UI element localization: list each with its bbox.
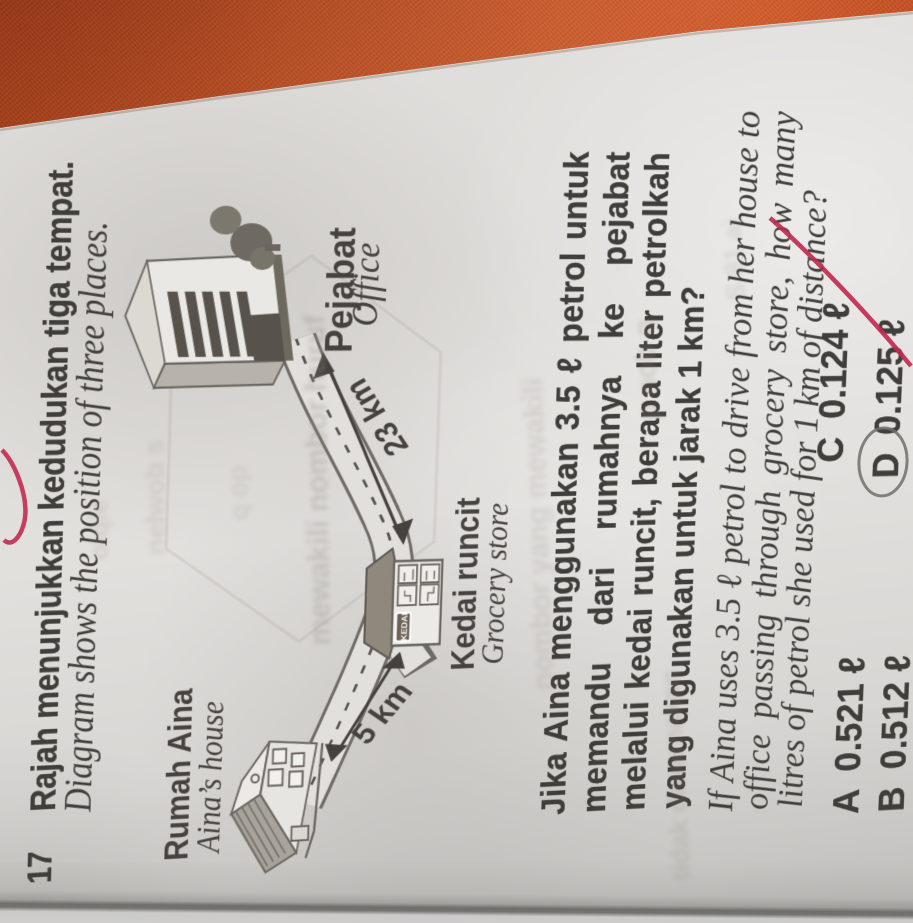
svg-text:S 81 ai: S 81 ai xyxy=(717,217,751,301)
svg-text:tidak diwarnakan: tidak diwarnakan xyxy=(655,669,696,881)
svg-text:nombor yang mewakili: nombor yang mewakili xyxy=(517,377,560,691)
svg-text:nelwob s: nelwob s xyxy=(139,439,171,555)
svg-text:p nob q: p nob q xyxy=(628,319,664,422)
svg-text:olqie: olqie xyxy=(83,499,114,560)
svg-text:q op: q op xyxy=(222,465,254,521)
svg-text:mewakili nombor huruf: mewakili nombor huruf xyxy=(298,314,337,646)
